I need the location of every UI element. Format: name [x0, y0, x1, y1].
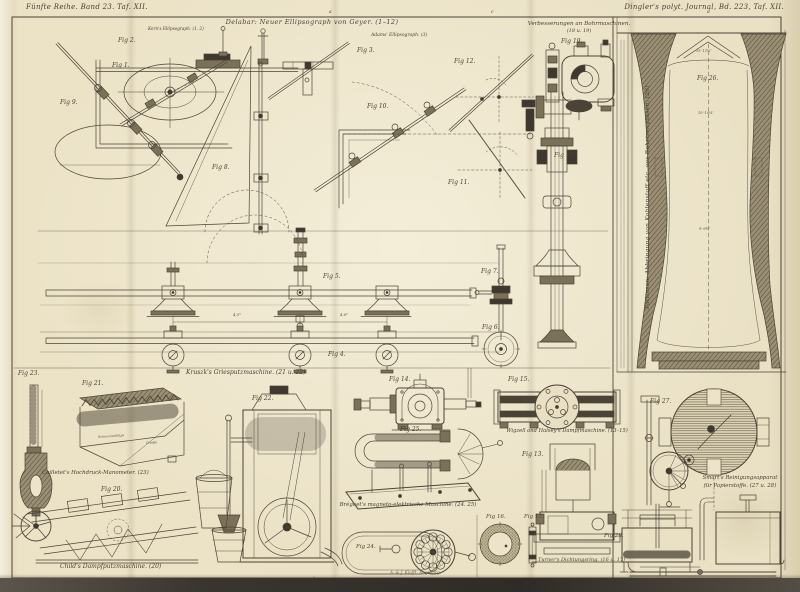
dimension-left: 4,5ᵐ [233, 313, 241, 317]
fig-label-2: Fig 2. [118, 38, 136, 45]
caption-kern: Kern's Ellipsograph. (1. 2) [148, 27, 204, 32]
engraving-lines [12, 17, 786, 578]
caption-bohrmaschinen: Verbesserungen an Bohrmaschinen. [520, 21, 638, 27]
fig17-drawing [529, 523, 536, 567]
fig-label-19: Fig 19. [561, 39, 582, 46]
fig4-drawing [40, 326, 500, 373]
fig-label-9: Fig 9. [60, 100, 78, 107]
fig-label-23: Fig 23. [18, 371, 39, 378]
caption-dichtungsring: Turner's Dichtungsring. (16 u. 17) [538, 558, 625, 564]
fig-label-26: Fig 26. [697, 76, 718, 83]
fig28-drawing [620, 495, 784, 576]
dimension-right: 4,6ᵐ [340, 313, 348, 317]
plate-header-left: Fünfte Reihe. Band 23. Taf. XII. [26, 4, 148, 12]
fig18-side-detail [522, 100, 535, 139]
fig-label-22: Fig 22. [252, 396, 273, 403]
fig27-drawing [641, 389, 769, 510]
scanner-background-strip [0, 578, 800, 592]
fig16-drawing [478, 522, 522, 566]
caption-bohrmaschinen-figs: (18 u. 19) [520, 29, 638, 35]
fig25-drawing [346, 429, 503, 509]
fig-label-11: Fig 11. [448, 180, 469, 187]
fig-label-3: Fig 3. [357, 48, 375, 55]
caption-ellipsograph-title: Delabar: Neuer Ellipsograph von Geyer. (… [212, 19, 412, 26]
fig22-drawing [196, 386, 342, 566]
caption-reinigung-line2: für Papierstoffe. (27 u. 28) [694, 484, 786, 490]
fig-label-13: Fig 13. [522, 452, 543, 459]
fig-label-6: Fig 6. [482, 325, 500, 332]
fig-label-1: Fig 1. [112, 63, 130, 70]
fig-label-15: Fig 15. [508, 377, 529, 384]
fig26-drawing [617, 33, 786, 369]
fig-label-21: Fig 21. [82, 381, 103, 388]
fig-label-12: Fig 12. [454, 59, 475, 66]
fig18-drawing [534, 92, 592, 348]
fig-label-20: Fig 20. [101, 487, 122, 494]
fig-label-18: Fig 18. [554, 153, 575, 160]
caption-griesputz: Kruszk's Griesputzmaschine. (21 u. 22) [186, 370, 305, 377]
caption-dampfmaschine: Wigzell and Halsey's Dampfmaschine. (13–… [498, 429, 636, 435]
scanned-plate-page: { "plate": { "header_left": "Fünfte Reih… [0, 0, 800, 592]
fig23-drawing [20, 385, 52, 522]
border-mark-top-a: a [329, 11, 332, 16]
caption-pattinson: Pattinson: Abbringung von Kohlenstoff et… [645, 61, 651, 333]
fig-label-8: Fig 8. [212, 165, 230, 172]
fig-label-28: Fig 28. [604, 533, 624, 539]
fig-label-10: Fig 10. [367, 104, 388, 111]
fig-label-25: Fig 25. [400, 427, 421, 434]
fig-label-27: Fig 27. [650, 399, 671, 406]
border-mark-top-c: c [491, 11, 494, 16]
caption-manometer: Cailletet's Hochdruck-Manometer. (23) [42, 471, 149, 477]
fig10-drawing [314, 82, 530, 208]
fig-label-5: Fig 5. [323, 274, 341, 281]
fig8-drawing [166, 46, 289, 234]
fig26-dimension-mid: 10′·10¼″ [698, 112, 714, 116]
plate-frame [12, 17, 786, 578]
fig-label-16: Fig 16. [486, 514, 506, 520]
fig26-dimension-low: 9′·9½″ [699, 228, 710, 232]
fig14-drawing [354, 368, 481, 430]
fig-label-14: Fig 14. [389, 377, 410, 384]
fig21-drawing [80, 388, 184, 466]
fig13-drawing [532, 444, 622, 562]
fig26-dimension-top: 15′·11½″ [696, 50, 712, 54]
caption-dampfputz: Child's Dampfputzmaschine. (20) [60, 564, 161, 571]
border-mark-top-d: d [707, 11, 710, 16]
fig-label-17: Fig 17. [524, 514, 544, 520]
plate-header-right: Dingler's polyt. Journal, Bd. 223, Taf. … [624, 4, 784, 12]
caption-magneto: Bréguet's magneto-elektrische Maschine. … [332, 503, 484, 509]
fig15-drawing [494, 385, 620, 429]
fig3-drawing [268, 42, 350, 100]
fig-label-7: Fig 7. [481, 269, 499, 276]
caption-adams: Adams' Ellipsograph. (3) [371, 34, 427, 39]
caption-reinigung-line1: Smart's Reinigungsapparat [694, 476, 786, 482]
fig-label-24: Fig 24. [356, 544, 376, 550]
fig1-drawing [118, 58, 228, 128]
fig-label-4: Fig 4. [328, 352, 346, 359]
